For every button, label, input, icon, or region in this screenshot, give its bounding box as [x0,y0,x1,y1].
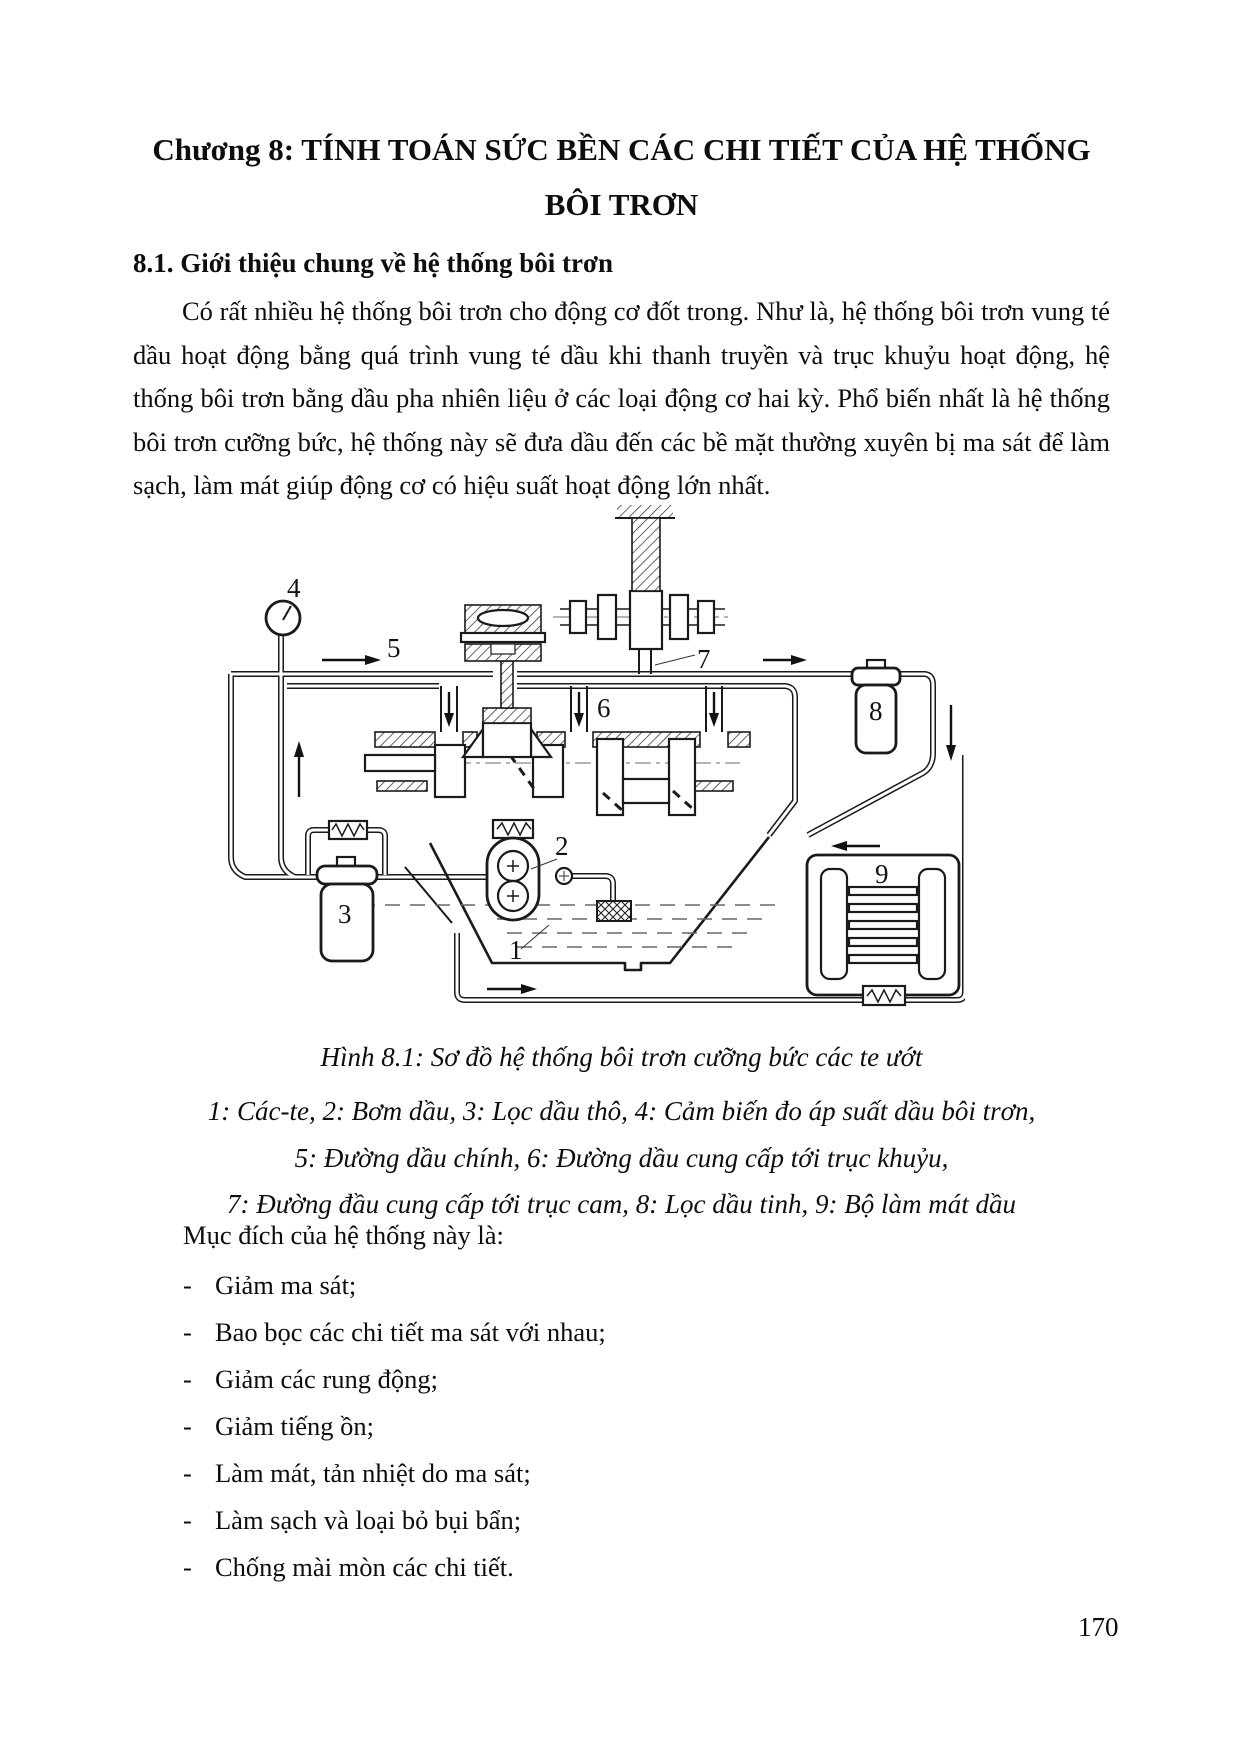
oil-sump [360,837,783,970]
arrow-down-right-pipe [946,705,956,761]
bullet-dash: - [183,1544,192,1591]
bullet-text: Làm mát, tản nhiệt do ma sát; [215,1458,531,1488]
arrow-down-well-2 [574,692,584,727]
valve-rocker-assembly [461,605,545,661]
list-item: - Bao bọc các chi tiết ma sát với nhau; [183,1309,1113,1356]
bullet-text: Bao bọc các chi tiết ma sát với nhau; [215,1317,606,1347]
label-2-pump: 2 [555,831,569,861]
intro-paragraph: Có rất nhiều hệ thống bôi trơn cho động … [133,290,1110,508]
bullet-text: Làm sạch và loại bỏ bụi bẩn; [215,1505,521,1535]
chapter-title: Chương 8: TÍNH TOÁN SỨC BỀN CÁC CHI TIẾT… [133,122,1110,232]
legend-line-2: 5: Đường dầu chính, 6: Đường dầu cung cấ… [103,1135,1140,1182]
chapter-title-line1: Chương 8: TÍNH TOÁN SỨC BỀN CÁC CHI TIẾT… [133,122,1110,177]
label-6-crank-line: 6 [597,693,611,723]
arrow-up-left-pipe [294,741,304,797]
bullet-text: Giảm các rung động; [215,1364,438,1394]
bullet-text: Giảm ma sát; [215,1270,356,1300]
arrow-right-main-gallery [322,655,381,665]
list-item: - Làm sạch và loại bỏ bụi bẩn; [183,1497,1113,1544]
section-heading: 8.1. Giới thiệu chung về hệ thống bôi tr… [133,248,1110,279]
arrow-right-return-line [487,984,537,994]
bullet-dash: - [183,1450,192,1497]
filter-bypass-valve [329,821,367,839]
bullet-dash: - [183,1497,192,1544]
list-item: - Giảm ma sát; [183,1262,1113,1309]
arrow-right-to-filter8 [763,655,807,665]
list-item: - Làm mát, tản nhiệt do ma sát; [183,1450,1113,1497]
document-page: Chương 8: TÍNH TOÁN SỨC BỀN CÁC CHI TIẾT… [0,0,1240,1754]
bullet-text: Chống mài mòn các chi tiết. [215,1552,514,1582]
list-item: - Chống mài mòn các chi tiết. [183,1544,1113,1591]
bullet-dash: - [183,1262,192,1309]
pump-relief-valve [493,820,533,838]
oil-pressure-gauge [266,601,300,635]
bullet-text: Giảm tiếng ồn; [215,1411,374,1441]
purpose-list: - Giảm ma sát; - Bao bọc các chi tiết ma… [183,1262,1113,1591]
arrow-down-well-1 [444,692,454,727]
figure-caption: Hình 8.1: Sơ đồ hệ thống bôi trơn cưỡng … [133,1042,1110,1073]
oil-strainer [597,901,631,921]
label-9-cooler: 9 [875,859,889,889]
coarse-oil-filter [317,821,377,961]
label-5-main-gallery: 5 [387,633,401,663]
diagram-svg: 1 2 3 4 5 6 7 8 9 [225,505,965,1035]
cooler-relief-valve [863,986,905,1005]
bullet-dash: - [183,1403,192,1450]
legend-line-1: 1: Các-te, 2: Bơm dầu, 3: Lọc dầu thô, 4… [103,1088,1140,1135]
label-8-fine-filter: 8 [869,696,883,726]
bullet-dash: - [183,1309,192,1356]
list-item: - Giảm các rung động; [183,1356,1113,1403]
engine-block [365,732,750,815]
label-7-cam-line: 7 [697,644,711,674]
label-3-coarse-filter: 3 [338,899,352,929]
list-item: - Giảm tiếng ồn; [183,1403,1113,1450]
label-4-gauge: 4 [287,573,301,603]
figure-legend: 1: Các-te, 2: Bơm dầu, 3: Lọc dầu thô, 4… [103,1088,1140,1228]
chapter-title-line2: BÔI TRƠN [133,177,1110,232]
label-1-sump: 1 [509,935,523,965]
purpose-intro: Mục đích của hệ thống này là: [183,1220,504,1251]
page-number: 170 [1078,1612,1119,1643]
bullet-dash: - [183,1356,192,1403]
arrow-down-well-3 [709,692,719,727]
arrow-left-into-sump [831,841,880,851]
lubrication-system-diagram: 1 2 3 4 5 6 7 8 9 [225,505,965,1035]
